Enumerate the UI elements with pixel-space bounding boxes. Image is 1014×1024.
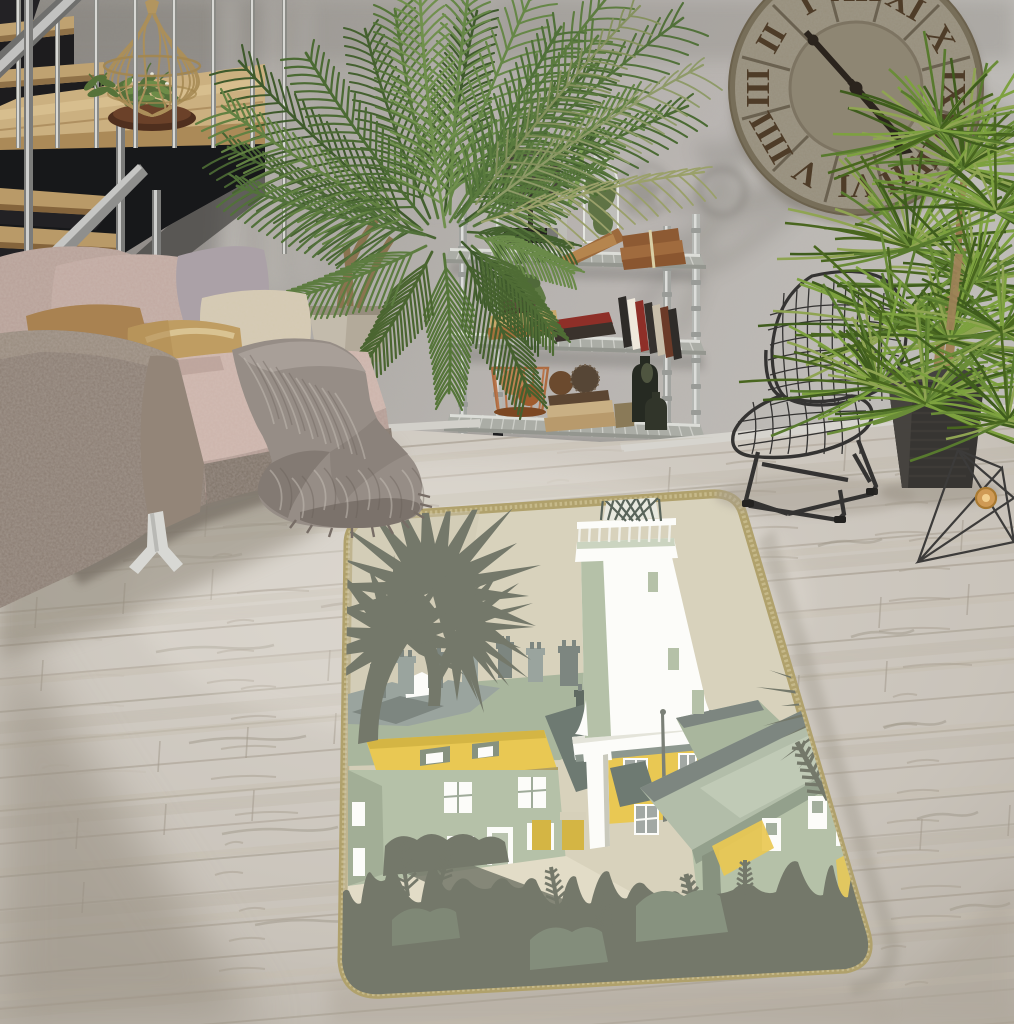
svg-text:XII: XII	[830, 0, 881, 9]
svg-text:III: III	[740, 68, 777, 108]
